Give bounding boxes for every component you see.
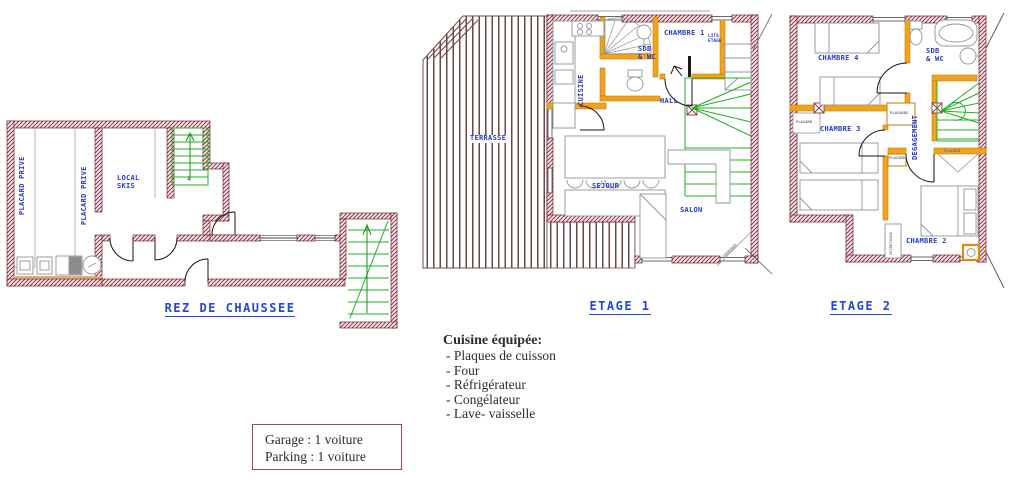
room-label-chambre-2: CHAMBRE 2 (906, 238, 947, 246)
roof-edge-ticks (986, 13, 1004, 288)
room-label-salon: SALON (680, 207, 703, 215)
kitchen-note-item: - Four (443, 364, 556, 379)
bathroom-fixtures (910, 20, 980, 64)
room-label-sdb-wc: SDB & WC (638, 46, 656, 61)
room-label-local-skis: LOCAL SKIS (117, 175, 140, 190)
garage-line: Garage : 1 voiture (265, 431, 401, 448)
plan-title-rez-de-chaussee: REZ DE CHAUSSEE (145, 301, 315, 315)
room-label-cuisine: CUISINE (578, 50, 586, 106)
room-label-chambre-4: CHAMBRE 4 (818, 55, 859, 63)
room-label-chambre-1: CHAMBRE 1 (664, 30, 705, 38)
kitchen-equipment-note: Cuisine équipée: - Plaques de cuisson - … (443, 333, 556, 422)
closet-label-placard-left: PLACARD (796, 120, 812, 124)
rdc-walls (7, 121, 397, 328)
room-label-placard-prive-1: PLACARD PRIVE (19, 133, 27, 215)
plan-rdc-drawing (5, 115, 405, 330)
room-label-sejour: SEJOUR (592, 183, 619, 191)
room-label-placard-prive-2: PLACARD PRIVE (81, 143, 89, 225)
kitchen-note-item: - Réfrigérateur (443, 378, 556, 393)
rdc-appliances (17, 256, 101, 275)
closet-label-placard-right: PLACARD (944, 149, 960, 153)
door-jamb (688, 56, 691, 77)
plan-title-etage-2: ETAGE 2 (816, 299, 906, 313)
rdc-counter-line (14, 276, 102, 279)
closet-label-placards: PLACARDS (890, 111, 908, 115)
garage-parking-box: Garage : 1 voiture Parking : 1 voiture (252, 424, 402, 470)
flue-box (963, 245, 979, 260)
rdc-staircase-right (348, 221, 389, 318)
room-label-sdb-wc-2: SDB & WC (926, 48, 944, 63)
room-label-hall: HALL (660, 98, 678, 106)
plan-title-etage-1: ETAGE 1 (575, 299, 665, 313)
bunk-bed (725, 44, 751, 90)
plan-rez-de-chaussee: PLACARD PRIVE PLACARD PRIVE LOCAL SKIS 1… (5, 115, 405, 330)
kitchen-note-item: - Congélateur (443, 393, 556, 408)
plan-etage-2: CHAMBRE 4 SDB & WC DEGAGEMENT PLACARDS P… (788, 8, 1024, 320)
floorplan-sheet: PLACARD PRIVE PLACARD PRIVE LOCAL SKIS 1… (0, 0, 1024, 483)
parking-line: Parking : 1 voiture (265, 448, 401, 465)
etage2-staircase (937, 81, 979, 141)
room-label-chambre-3: CHAMBRE 3 (820, 126, 861, 134)
room-label-degagement: DEGAGEMENT (912, 78, 920, 160)
plan-etage-1: TERRASSE CUISINE SDB & WC CHAMBRE 1 LITS… (420, 8, 780, 320)
rdc-doors (110, 212, 235, 282)
room-label-terrasse: TERRASSE (468, 135, 508, 143)
closet-label-placard-small: PLACARD (889, 156, 905, 160)
plan-etage1-drawing (420, 8, 780, 320)
kitchen-note-item: - Plaques de cuisson (443, 349, 556, 364)
room-label-lits-etage: LITS ETAGE (708, 35, 722, 45)
kitchen-note-heading: Cuisine équipée: (443, 333, 556, 349)
stair-number: 1 (187, 176, 190, 184)
kitchen-note-item: - Lave- vaisselle (443, 407, 556, 422)
desk-label-secretaire: SECRETAIRE (889, 227, 893, 255)
